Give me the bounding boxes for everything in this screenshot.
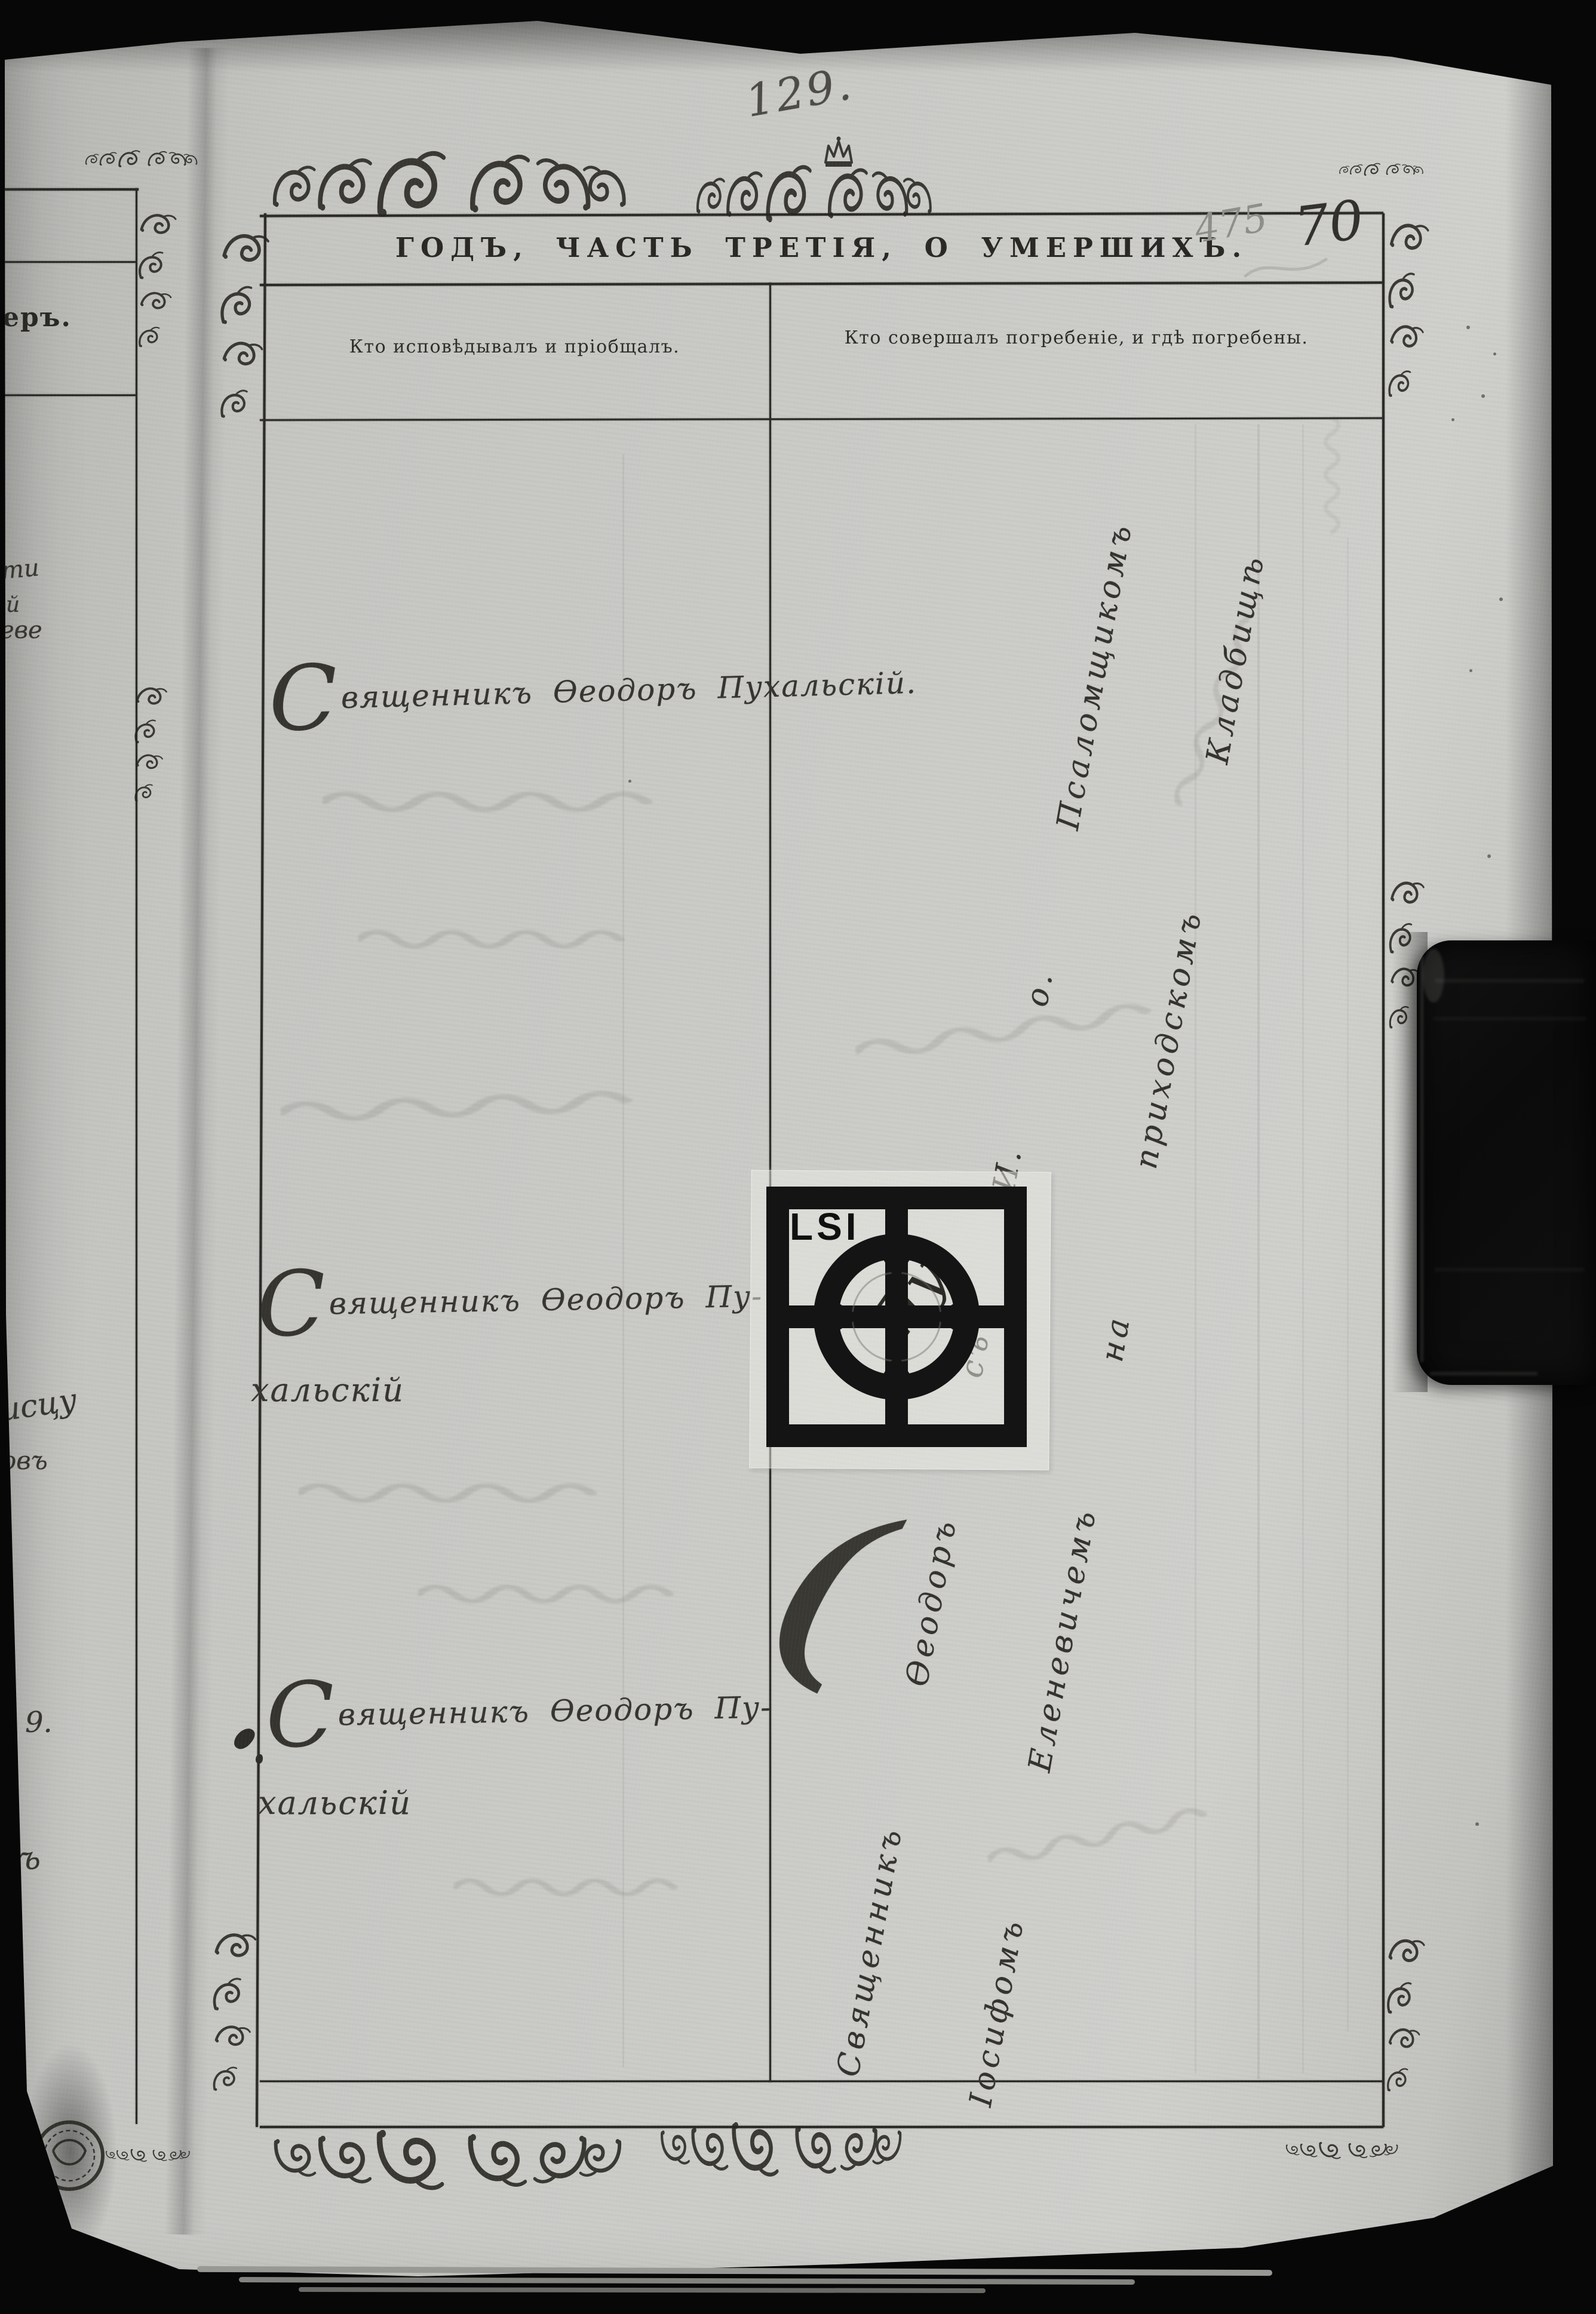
ornament-top-right-corner (1338, 142, 1428, 196)
scanned-page: еръ. ти й еве исцу овъ 9. въ (0, 0, 1596, 2314)
underpage-border-rule (136, 188, 137, 2124)
clamp-bottom-glint (1430, 1372, 1537, 1375)
bleed-ghost-writing (454, 1876, 705, 1899)
ornament-underpage-side (133, 675, 168, 825)
speck (1475, 1822, 1479, 1826)
printer-medallion (22, 2114, 117, 2197)
margin-fragment: й (6, 593, 20, 617)
table-bottom-rule (260, 2080, 1383, 2082)
page-title: ГОДЪ, ЧАСТЬ ТРЕТІЯ, О УМЕРШИХЪ. (260, 232, 1383, 263)
corner-lift-shadow (24, 1900, 179, 2258)
ornament-underpage-corner (84, 134, 203, 182)
paper-sheet: еръ. ти й еве исцу овъ 9. въ (0, 0, 1596, 2314)
handwritten-page-number: 129. (742, 58, 857, 127)
page-block-edge (299, 2287, 986, 2293)
underpage-top-rule (0, 188, 139, 191)
ornament-top-center-band (693, 163, 944, 222)
pencil-folio-number: 475 (1192, 196, 1271, 252)
ornament-top-left-band (268, 148, 644, 217)
speck (1481, 394, 1485, 398)
speck (628, 780, 631, 783)
pencil-flourish (1242, 251, 1332, 287)
ink-blot (256, 1754, 263, 1764)
table-top-rule (260, 281, 1383, 286)
speck (1487, 854, 1491, 858)
underpage-box-line-2 (0, 394, 136, 396)
speck (1499, 597, 1503, 601)
entry-2-line-1: Священникъ Ѳеодоръ Пу- (257, 1279, 763, 1323)
frame-right-rule (1382, 213, 1385, 2127)
bleed-ghost-writing (299, 1481, 633, 1506)
ornament-right-bottom-chain (1385, 1936, 1426, 2109)
page-fold-crease (165, 48, 229, 2235)
ornament-right-corner-chain (1386, 220, 1431, 417)
margin-fragment: ти (0, 554, 40, 584)
bleed-line (622, 454, 624, 2067)
entry-2-line-2: хальскій (251, 1371, 404, 1409)
underpage-header-fragment: еръ. (2, 302, 72, 333)
lsi-label: LSI (790, 1204, 860, 1249)
column-header-confession: Кто исповѣдывалъ и пріобщалъ. (272, 336, 757, 357)
ornament-underpage-side (136, 197, 178, 376)
table-header-rule (260, 417, 1383, 421)
ornament-bottom-right-corner (1284, 2118, 1404, 2184)
ink-folio-number: 70 (1291, 188, 1367, 259)
frame-top-rule (260, 212, 1383, 217)
bleed-line (1257, 424, 1260, 2079)
entry-3-line-2: хальскій (258, 1784, 412, 1822)
book-clamp (1417, 940, 1596, 1385)
speck (1451, 418, 1454, 421)
margin-fragment: овъ (1, 1446, 48, 1475)
margin-fragment: въ (0, 1838, 42, 1880)
ornament-underpage-bottom (105, 2120, 194, 2192)
clamp-ridge (1434, 1017, 1586, 1020)
clamp-highlight (1420, 956, 1423, 1362)
column-header-burial: Кто совершалъ погребеніе, и гдѣ погребен… (781, 327, 1371, 348)
page-block-edge (239, 2277, 1135, 2285)
speck (1466, 326, 1470, 329)
underpage-box-line-1 (0, 261, 136, 263)
margin-fragment: 9. (25, 1706, 53, 1739)
bleed-line (1195, 424, 1196, 2073)
bleed-ghost-writing (1321, 417, 1343, 548)
paper-top-shadow (0, 18, 1596, 72)
bleed-ghost-writing (323, 789, 693, 815)
bleed-ghost-writing (854, 992, 1189, 1065)
ink-blot (231, 1724, 257, 1753)
bleed-ghost-writing (1168, 589, 1269, 810)
paper-vignette (0, 0, 1596, 2314)
ornament-left-bottom-chain (210, 1930, 258, 2109)
frame-left-rule (256, 213, 266, 2127)
crown-ornament (821, 136, 857, 168)
speck (1469, 669, 1472, 672)
bleed-line (1302, 424, 1304, 2073)
clamp-ridge (1435, 979, 1584, 983)
speck (1493, 353, 1496, 355)
clamp-ridge (1435, 1268, 1584, 1271)
bleed-line (1347, 538, 1349, 2031)
bleed-ghost-writing (280, 1085, 675, 1126)
ornament-bottom-center-band (657, 2122, 914, 2179)
bleed-ghost-writing (986, 1797, 1236, 1872)
ornament-left-corner-chain (217, 230, 271, 439)
bleed-ghost-writing (358, 927, 657, 951)
ornament-bottom-left-band (269, 2130, 639, 2193)
margin-fragment: еве (0, 617, 42, 644)
clamp-glint (1423, 949, 1444, 1003)
margin-fragment: исцу (0, 1382, 79, 1428)
entry-1-line-1: Священникъ Ѳеодоръ Пухальскій. (268, 666, 917, 717)
bleed-ghost-writing (418, 1582, 705, 1606)
entry-3-line-1: Священникъ Ѳеодоръ Пу- (266, 1690, 772, 1734)
grouping-flourish: ( (747, 1476, 909, 1714)
frame-bottom-rule (260, 2126, 1383, 2128)
